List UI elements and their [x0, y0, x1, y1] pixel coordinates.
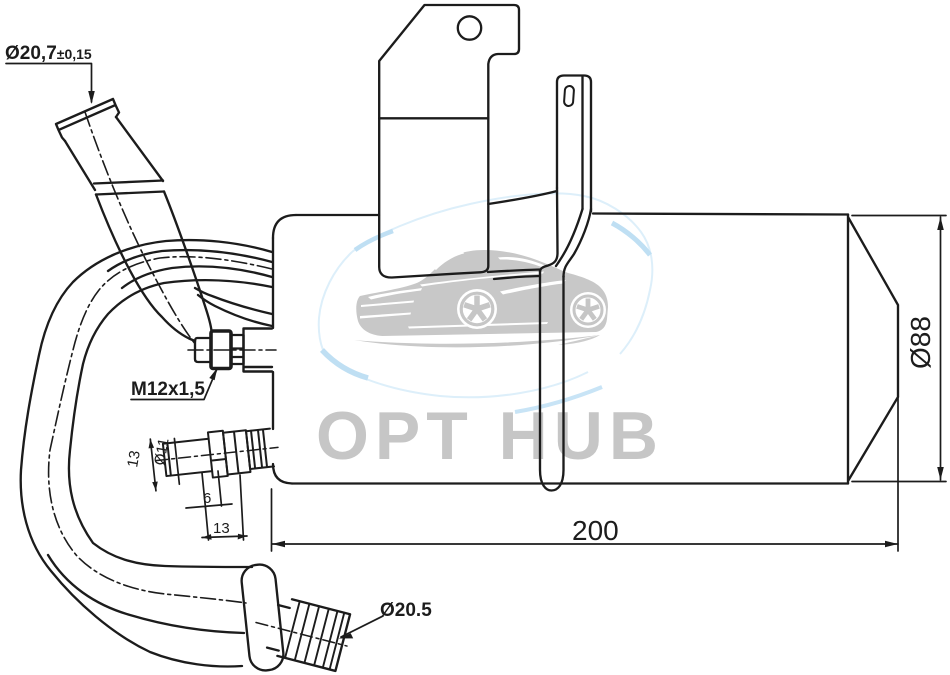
- svg-text:Ø20,7±0,15: Ø20,7±0,15: [5, 43, 92, 64]
- svg-text:200: 200: [572, 515, 619, 546]
- svg-text:Ø20.5: Ø20.5: [380, 600, 432, 621]
- svg-text:6: 6: [203, 490, 211, 507]
- svg-text:13: 13: [213, 520, 230, 537]
- svg-text:M12x1,5: M12x1,5: [131, 379, 205, 400]
- svg-text:Ø88: Ø88: [905, 316, 936, 369]
- svg-text:13: 13: [124, 449, 144, 468]
- svg-text:OPT HUB: OPT HUB: [316, 398, 664, 474]
